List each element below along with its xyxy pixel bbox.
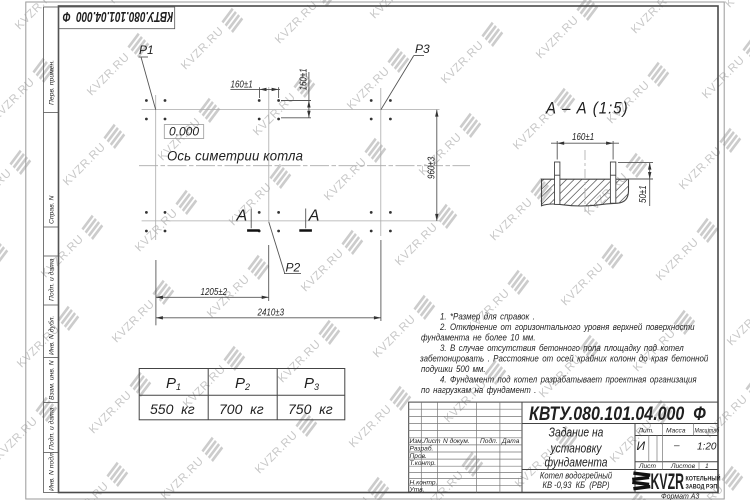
svg-text:KVZR.RU: KVZR.RU	[417, 131, 464, 178]
svg-text:KVZR.RU: KVZR.RU	[488, 196, 535, 243]
svg-text:700 кг: 700 кг	[219, 401, 264, 417]
svg-text:Инв. N подл.: Инв. N подл.	[48, 451, 56, 491]
svg-text:Взам. инв. N: Взам. инв. N	[49, 360, 56, 400]
svg-text:Разраб.: Разраб.	[410, 445, 434, 453]
svg-text:KVZR.RU: KVZR.RU	[371, 313, 418, 360]
svg-text:1:20: 1:20	[697, 442, 717, 453]
svg-text:0.000: 0.000	[169, 125, 199, 139]
svg-text:160±1: 160±1	[572, 131, 594, 142]
svg-text:P: P	[166, 375, 176, 392]
svg-text:KVZR.RU: KVZR.RU	[253, 429, 300, 476]
svg-text:2. Отклонение от горизонтально: 2. Отклонение от горизонтального уровня …	[439, 321, 695, 332]
svg-text:KVZR.RU: KVZR.RU	[251, 91, 298, 138]
svg-text:KVZR.RU: KVZR.RU	[299, 247, 346, 294]
svg-text:Т.контр.: Т.контр.	[410, 460, 437, 467]
svg-text:KVZR.RU: KVZR.RU	[273, 0, 320, 46]
svg-text:–: –	[673, 441, 680, 452]
svg-text:KVZR.RU: KVZR.RU	[0, 76, 37, 123]
svg-text:KVZR.RU: KVZR.RU	[347, 403, 394, 450]
svg-text:подушки 500 мм.: подушки 500 мм.	[421, 363, 486, 374]
svg-text:И: И	[637, 439, 646, 453]
svg-text:1: 1	[176, 382, 181, 392]
svg-text:по нагрузкам на фундамент .: по нагрузкам на фундамент .	[421, 384, 536, 395]
svg-text:2: 2	[244, 382, 250, 392]
svg-text:KVZR.RU: KVZR.RU	[322, 156, 369, 203]
svg-text:KVZR.RU: KVZR.RU	[110, 298, 157, 345]
svg-text:Дата: Дата	[501, 438, 520, 445]
svg-text:Ось симетрии котла: Ось симетрии котла	[167, 148, 303, 163]
svg-text:KVZR.RU: KVZR.RU	[345, 65, 392, 112]
svg-text:KVZR.RU: KVZR.RU	[61, 141, 108, 188]
svg-text:ЗАВОД РЭП: ЗАВОД РЭП	[686, 484, 718, 490]
svg-text:фундамента не более 10 мм.: фундамента не более 10 мм.	[421, 332, 536, 343]
svg-text:Подп. и дата: Подп. и дата	[48, 407, 56, 450]
svg-text:P1: P1	[139, 43, 154, 57]
svg-text:KVZR.RU: KVZR.RU	[654, 236, 701, 283]
svg-text:1: 1	[705, 463, 709, 470]
svg-text:3: 3	[314, 382, 319, 392]
svg-text:КОТЕЛЬНЫЙ: КОТЕЛЬНЫЙ	[686, 474, 721, 483]
svg-text:А: А	[236, 208, 248, 225]
svg-text:Подп.: Подп.	[480, 437, 498, 445]
svg-text:Масса: Масса	[666, 428, 686, 435]
svg-text:1. *Размер для справок .: 1. *Размер для справок .	[440, 311, 535, 322]
svg-text:P2: P2	[286, 261, 301, 275]
svg-text:Справ. N: Справ. N	[49, 195, 56, 224]
svg-text:А – А (1:5): А – А (1:5)	[545, 100, 629, 118]
svg-text:P: P	[304, 375, 314, 392]
svg-text:P: P	[235, 375, 245, 392]
svg-text:1205±2: 1205±2	[201, 286, 228, 297]
svg-text:Инв. N дубл.: Инв. N дубл.	[48, 316, 56, 355]
svg-text:960±3: 960±3	[426, 157, 437, 179]
svg-text:160±1: 160±1	[231, 78, 253, 89]
svg-text:3. В случае отсутствия бетонно: 3. В случае отсутствия бетонного пола пл…	[440, 342, 684, 353]
svg-text:KVZR.RU: KVZR.RU	[0, 415, 40, 462]
svg-text:Изм.Лист: Изм.Лист	[410, 438, 442, 445]
svg-text:Задание на: Задание на	[549, 425, 604, 439]
svg-text:Лит.: Лит.	[638, 428, 655, 435]
svg-text:KVZR.RU: KVZR.RU	[85, 51, 132, 98]
svg-text:P3: P3	[415, 42, 430, 56]
svg-text:установку: установку	[550, 441, 603, 455]
svg-text:фундамента: фундамента	[544, 455, 607, 469]
svg-text:KVZR.RU: KVZR.RU	[559, 261, 606, 308]
svg-text:KVZR.RU: KVZR.RU	[439, 39, 486, 86]
svg-text:КВТУ.080.101.04.000 Ф: КВТУ.080.101.04.000 Ф	[529, 402, 706, 424]
svg-text:160±1: 160±1	[298, 68, 309, 90]
svg-text:KVZR.RU: KVZR.RU	[64, 480, 111, 500]
svg-text:550 кг: 550 кг	[150, 401, 195, 417]
svg-text:Утв.: Утв.	[409, 487, 425, 494]
svg-text:2410±3: 2410±3	[257, 306, 284, 317]
svg-text:KVZR.RU: KVZR.RU	[534, 14, 581, 61]
svg-text:KVZR.RU: KVZR.RU	[0, 167, 14, 214]
svg-text:КВТУ.080.101.04.000 Ф: КВТУ.080.101.04.000 Ф	[63, 9, 174, 25]
svg-text:КВ -0,93 КБ (РВР): КВ -0,93 КБ (РВР)	[542, 479, 609, 490]
svg-text:забетонировать . Расстояние от: забетонировать . Расстояние от осей край…	[419, 353, 708, 364]
svg-text:KVZR.RU: KVZR.RU	[13, 0, 60, 32]
svg-text:Пров.: Пров.	[410, 453, 428, 460]
svg-text:KVZR.RU: KVZR.RU	[723, 0, 750, 10]
svg-text:KVZR.RU: KVZR.RU	[608, 418, 655, 465]
svg-text:Подп. и дата: Подп. и дата	[48, 258, 56, 301]
svg-text:KVZR.RU: KVZR.RU	[179, 25, 226, 72]
svg-text:KVZR.RU: KVZR.RU	[276, 338, 323, 385]
svg-text:KVZR.RU: KVZR.RU	[583, 171, 630, 218]
svg-text:Формат А3: Формат А3	[661, 494, 699, 500]
svg-text:Масштаб: Масштаб	[695, 428, 720, 435]
svg-text:KVZR.RU: KVZR.RU	[725, 301, 750, 348]
svg-text:N докум.: N докум.	[443, 437, 470, 445]
svg-text:KVZR.RU: KVZR.RU	[133, 207, 180, 254]
svg-text:Н.контр.: Н.контр.	[410, 480, 438, 487]
svg-text:KVZR.RU: KVZR.RU	[368, 0, 415, 21]
svg-text:KVZR.RU: KVZR.RU	[393, 221, 440, 268]
svg-text:50±1: 50±1	[637, 185, 648, 203]
svg-text:750 кг: 750 кг	[288, 401, 333, 417]
svg-text:KVZR.RU: KVZR.RU	[39, 233, 86, 280]
svg-text:А: А	[308, 208, 320, 225]
svg-text:4. Фундамент под котел разраба: 4. Фундамент под котел разрабатывает про…	[440, 374, 697, 385]
svg-text:KVZR: KVZR	[651, 469, 685, 494]
svg-text:KVZR.RU: KVZR.RU	[87, 389, 134, 436]
svg-text:Перв. примен.: Перв. примен.	[49, 60, 56, 105]
